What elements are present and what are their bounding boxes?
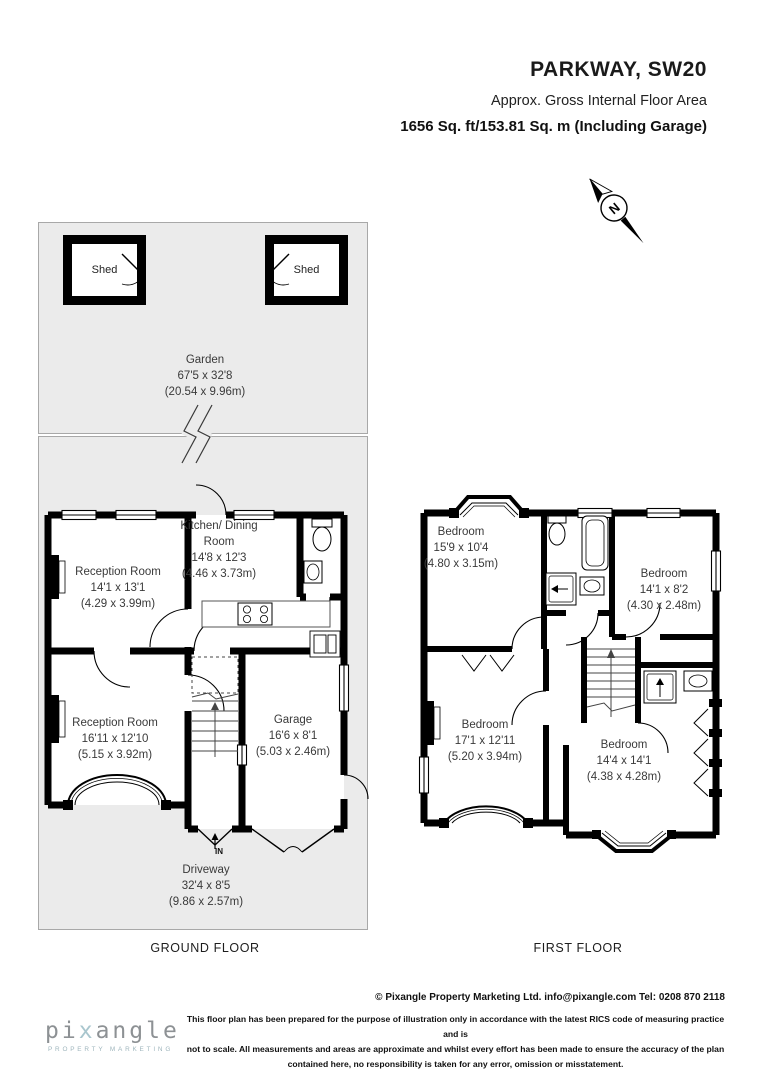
room-label-bedroom-3: Bedroom 17'1 x 12'11 (5.20 x 3.94m) xyxy=(448,717,522,765)
pixangle-logo: pixangle PROPERTY MARKETING xyxy=(45,1018,180,1053)
room-dims-ft: 14'8 x 12'3 xyxy=(173,550,265,566)
disclaimer-line: This floor plan has been prepared for th… xyxy=(183,1012,728,1042)
room-dims-m: (4.46 x 3.73m) xyxy=(173,566,265,582)
garage-door-icon xyxy=(252,829,334,852)
room-dims-ft: 16'6 x 8'1 xyxy=(256,728,330,744)
room-label-bedroom-4: Bedroom 14'4 x 14'1 (4.38 x 4.28m) xyxy=(587,737,661,785)
room-name: Garage xyxy=(256,712,330,728)
shed-left: Shed xyxy=(63,235,146,305)
room-label-driveway: Driveway 32'4 x 8'5 (9.86 x 2.57m) xyxy=(169,862,243,910)
toilet-icon xyxy=(312,519,332,551)
room-dims-m: (4.30 x 2.48m) xyxy=(627,598,701,614)
logo-wordmark: pixangle xyxy=(45,1018,180,1044)
room-label-garden: Garden 67'5 x 32'8 (20.54 x 9.96m) xyxy=(165,352,246,400)
basin-icon xyxy=(304,561,322,583)
logo-pre: pi xyxy=(45,1018,79,1044)
room-name: Bedroom xyxy=(627,566,701,582)
toilet-icon xyxy=(548,516,566,545)
room-name: Bedroom xyxy=(448,717,522,733)
room-name: Kitchen/ Dining Room xyxy=(173,518,265,550)
room-dims-m: (4.29 x 3.99m) xyxy=(75,596,161,612)
room-label-reception-front: Reception Room 14'1 x 13'1 (4.29 x 3.99m… xyxy=(75,564,161,612)
room-name: Bedroom xyxy=(587,737,661,753)
basin-icon xyxy=(580,577,604,595)
bathtub-icon xyxy=(582,516,608,570)
room-label-kitchen: Kitchen/ Dining Room 14'8 x 12'3 (4.46 x… xyxy=(173,518,265,582)
shed-door-icon xyxy=(263,252,291,294)
shed-right: Shed xyxy=(265,235,348,305)
shed-left-label: Shed xyxy=(92,264,118,276)
shower-icon xyxy=(546,573,576,605)
disclaimer-line: contained here, no responsibility is tak… xyxy=(183,1057,728,1072)
room-dims-m: (5.20 x 3.94m) xyxy=(448,749,522,765)
room-dims-m: (5.15 x 3.92m) xyxy=(72,747,158,763)
shed-right-label: Shed xyxy=(294,264,320,276)
room-dims-m: (9.86 x 2.57m) xyxy=(169,894,243,910)
room-dims-ft: 14'1 x 8'2 xyxy=(627,582,701,598)
floor-area-subtitle: Approx. Gross Internal Floor Area xyxy=(400,93,707,109)
compass-north-icon: N xyxy=(566,166,662,250)
room-dims-m: (5.03 x 2.46m) xyxy=(256,744,330,760)
room-dims-m: (4.80 x 3.15m) xyxy=(424,556,498,572)
room-label-reception-back: Reception Room 16'11 x 12'10 (5.15 x 3.9… xyxy=(72,715,158,763)
room-label-bedroom-1: Bedroom 15'9 x 10'4 (4.80 x 3.15m) xyxy=(424,524,498,572)
garden-dims-ft: 67'5 x 32'8 xyxy=(165,368,246,384)
garden-break-icon xyxy=(168,405,226,463)
logo-tagline: PROPERTY MARKETING xyxy=(45,1046,180,1053)
shed-door-icon xyxy=(120,252,148,294)
page-title: PARKWAY, SW20 xyxy=(400,58,707,82)
basin-icon xyxy=(684,671,712,691)
copyright-line: © Pixangle Property Marketing Ltd. info@… xyxy=(375,992,725,1003)
logo-post: angle xyxy=(96,1018,180,1044)
ground-floor-caption: GROUND FLOOR xyxy=(150,941,259,955)
disclaimer-line: not to scale. All measurements and areas… xyxy=(183,1042,728,1057)
garden-name: Garden xyxy=(165,352,246,368)
disclaimer: This floor plan has been prepared for th… xyxy=(183,1012,728,1072)
room-dims-ft: 32'4 x 8'5 xyxy=(169,878,243,894)
room-name: Reception Room xyxy=(75,564,161,580)
room-dims-ft: 14'1 x 13'1 xyxy=(75,580,161,596)
kitchen-sink-icon xyxy=(310,631,340,657)
garden-dims-m: (20.54 x 9.96m) xyxy=(165,384,246,400)
room-name: Bedroom xyxy=(424,524,498,540)
room-dims-ft: 15'9 x 10'4 xyxy=(424,540,498,556)
logo-accent: x xyxy=(79,1018,96,1044)
entrance-in-label: IN xyxy=(215,847,223,856)
room-name: Driveway xyxy=(169,862,243,878)
shower-icon xyxy=(644,671,676,703)
room-dims-m: (4.38 x 4.28m) xyxy=(587,769,661,785)
floor-area-value: 1656 Sq. ft/153.81 Sq. m (Including Gara… xyxy=(400,118,707,135)
room-label-bedroom-2: Bedroom 14'1 x 8'2 (4.30 x 2.48m) xyxy=(627,566,701,614)
hob-icon xyxy=(238,603,272,625)
header: PARKWAY, SW20 Approx. Gross Internal Flo… xyxy=(400,58,707,135)
room-dims-ft: 17'1 x 12'11 xyxy=(448,733,522,749)
room-dims-ft: 16'11 x 12'10 xyxy=(72,731,158,747)
first-floor-caption: FIRST FLOOR xyxy=(533,941,622,955)
room-dims-ft: 14'4 x 14'1 xyxy=(587,753,661,769)
chimney-breast xyxy=(424,701,440,745)
room-name: Reception Room xyxy=(72,715,158,731)
room-label-garage: Garage 16'6 x 8'1 (5.03 x 2.46m) xyxy=(256,712,330,760)
